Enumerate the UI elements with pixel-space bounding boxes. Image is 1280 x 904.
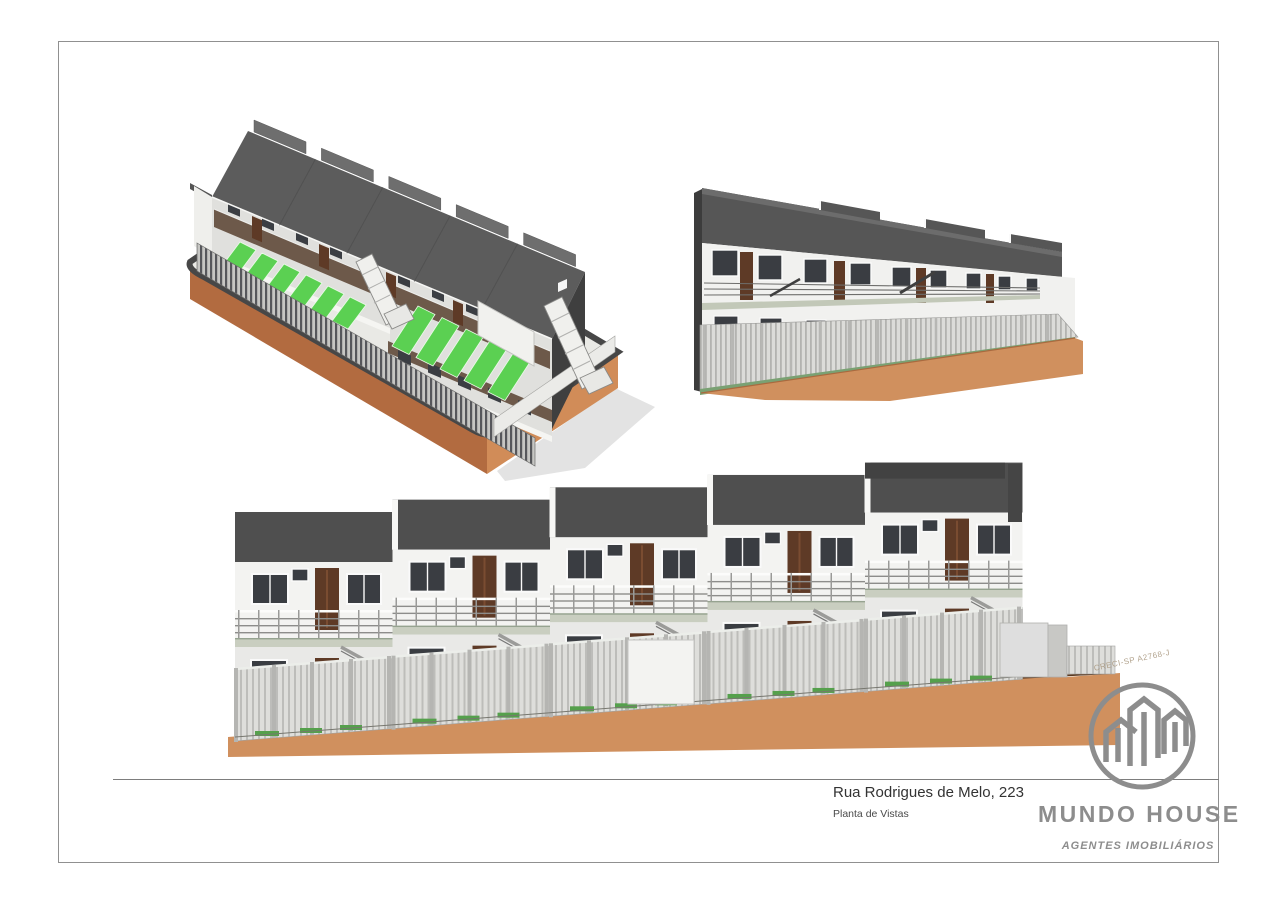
titleblock-divider (113, 779, 1219, 780)
brand-name: MUNDO HOUSE (1038, 801, 1238, 828)
sheet-title: Rua Rodrigues de Melo, 223 (833, 784, 1024, 801)
sheet-subtitle: Planta de Vistas (833, 808, 909, 820)
brand-tagline: AGENTES IMOBILIÁRIOS (1040, 840, 1236, 852)
drawing-sheet: Rua Rodrigues de Melo, 223 Planta de Vis… (0, 0, 1280, 904)
sheet-border-frame (58, 41, 1219, 863)
mundo-house-logo-icon (1085, 679, 1199, 793)
